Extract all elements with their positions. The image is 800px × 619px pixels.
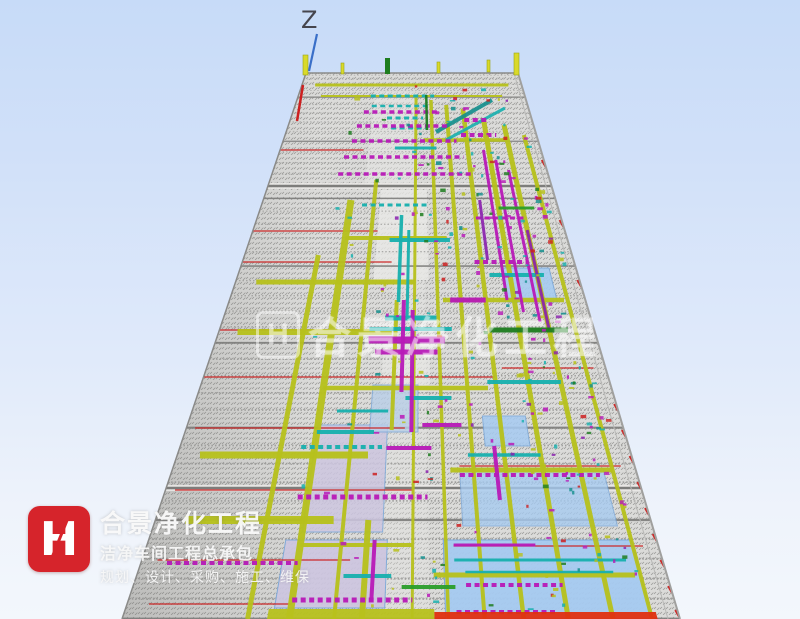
logo-text-block: 合景净化工程 洁净车间工程总承包 规划、设计、采购、施工、维保 [100, 506, 310, 586]
company-logo: H 合景净化工程 洁净车间工程总承包 规划、设计、采购、施工、维保 [28, 506, 310, 586]
logo-title: 合景净化工程 [100, 510, 310, 539]
logo-subtitle: 洁净车间工程总承包 [100, 546, 310, 564]
logo-tagline: 规划、设计、采购、施工、维保 [100, 570, 310, 585]
z-axis-label: Z [301, 6, 317, 34]
viewer-canvas[interactable]: Z H 合景净化工程 H 合景净化工程 洁净车间工程总承包 规划、设计、采购、施… [0, 0, 800, 619]
logo-mark: H [28, 506, 90, 572]
